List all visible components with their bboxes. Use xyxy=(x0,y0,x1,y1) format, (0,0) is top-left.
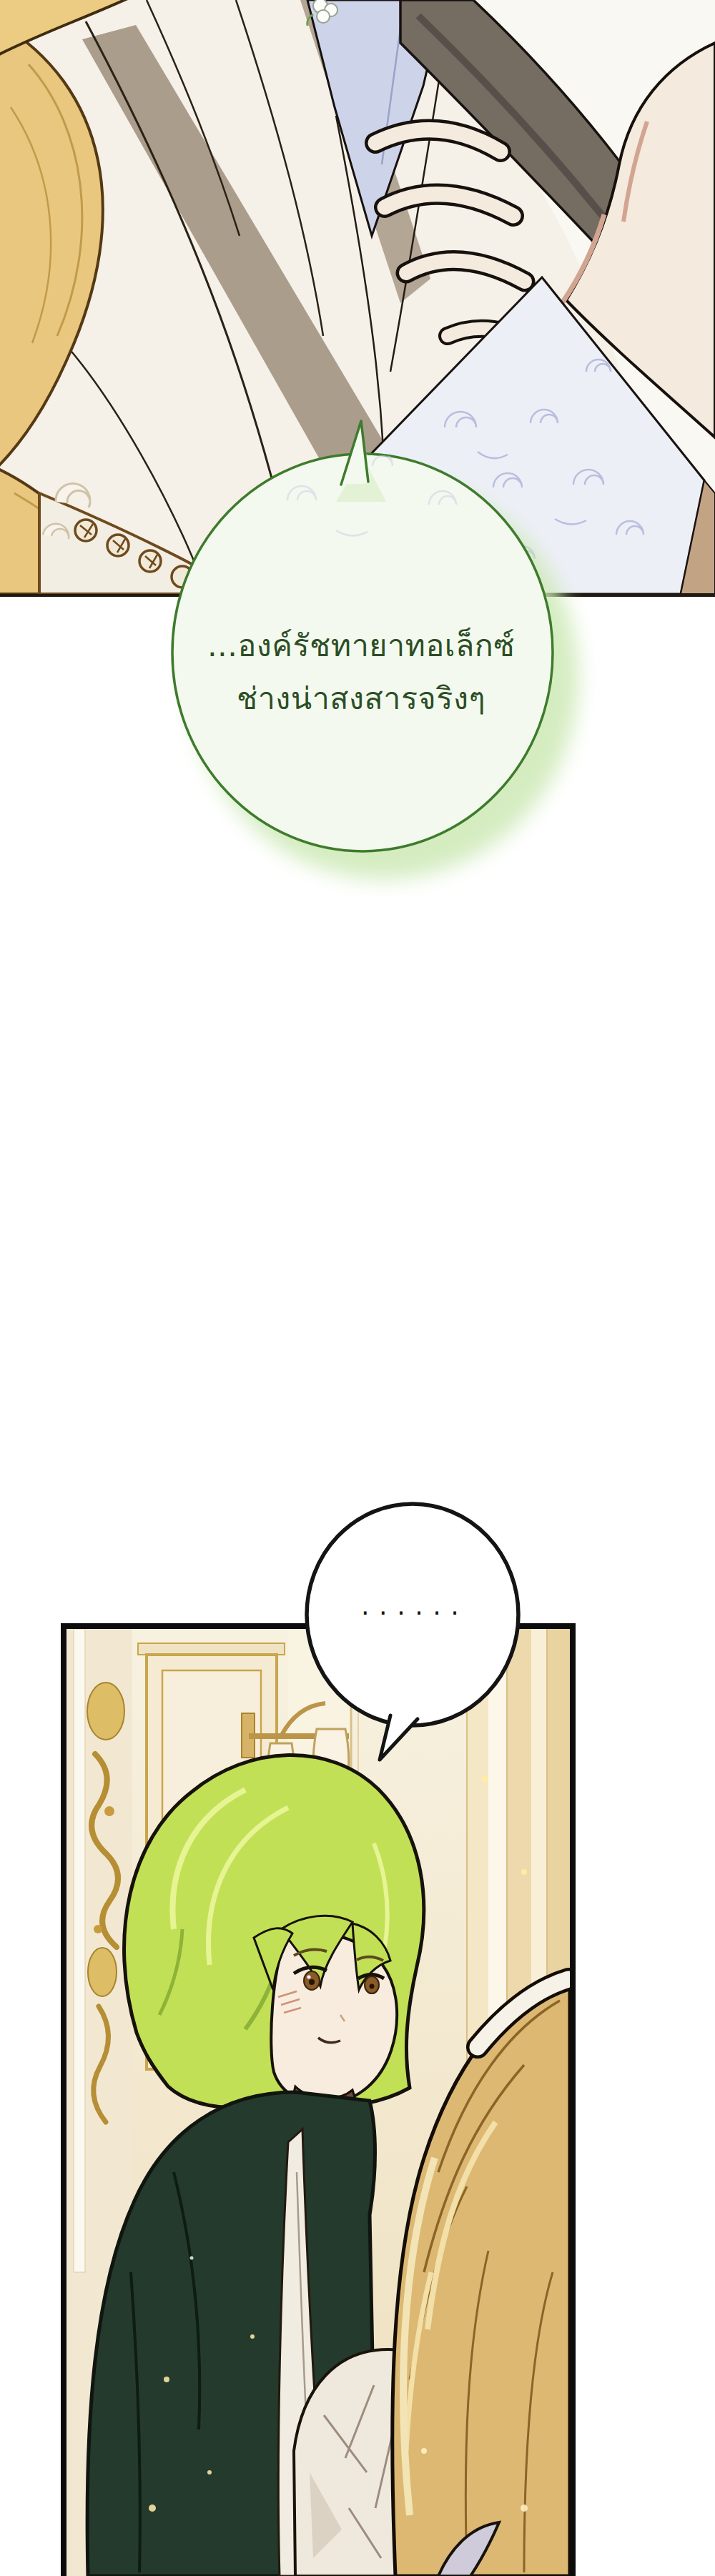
speech-line-1: ...องค์รัชทายาทอเล็กซ์ xyxy=(154,619,568,672)
panel-top xyxy=(0,0,715,597)
panel-gutter-whitespace xyxy=(0,597,715,1623)
comic-page: ...องค์รัชทายาทอเล็กซ์ ช่างน่าสงสารจริงๆ… xyxy=(0,0,715,2576)
panel-bottom xyxy=(61,1623,576,2576)
speech-line-2: ช่างน่าสงสารจริงๆ xyxy=(154,672,568,725)
speech-bubble-text: ...องค์รัชทายาทอเล็กซ์ ช่างน่าสงสารจริงๆ xyxy=(154,619,568,725)
thought-bubble-text: ...... xyxy=(355,1595,470,1620)
panel-bottom-art xyxy=(66,1629,570,2576)
panel-top-art xyxy=(0,0,715,594)
